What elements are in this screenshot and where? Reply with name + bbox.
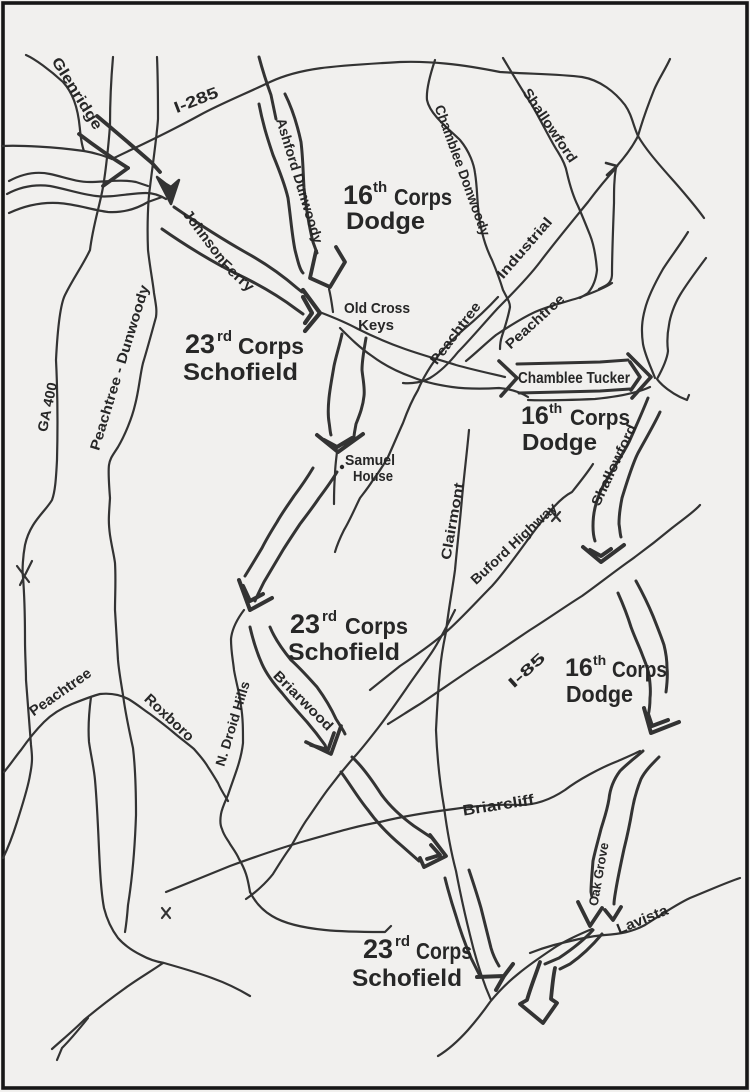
svg-text:Dodge: Dodge (566, 681, 633, 707)
svg-text:Dodge: Dodge (346, 208, 425, 235)
svg-text:Chamblee Tucker: Chamblee Tucker (518, 370, 630, 387)
svg-text:rd: rd (395, 933, 410, 950)
svg-text:th: th (593, 652, 606, 668)
svg-text:16: 16 (521, 402, 549, 430)
svg-text:Schofield: Schofield (288, 639, 400, 666)
svg-text:Samuel: Samuel (345, 453, 395, 469)
svg-text:Dodge: Dodge (522, 429, 597, 455)
svg-text:Corps: Corps (394, 184, 452, 210)
svg-text:16: 16 (565, 654, 593, 682)
svg-text:16: 16 (343, 180, 373, 210)
svg-text:23: 23 (363, 934, 393, 964)
svg-text:23: 23 (290, 609, 320, 639)
svg-text:Schofield: Schofield (352, 965, 462, 992)
svg-text:th: th (373, 179, 387, 196)
svg-text:Corps: Corps (612, 657, 667, 682)
svg-text:rd: rd (217, 328, 232, 345)
svg-text:Corps: Corps (345, 613, 408, 639)
svg-text:Schofield: Schofield (183, 359, 298, 386)
svg-text:Corps: Corps (416, 938, 472, 964)
svg-text:23: 23 (185, 329, 215, 359)
svg-text:Corps: Corps (570, 405, 630, 430)
svg-text:rd: rd (322, 608, 337, 625)
svg-text:th: th (549, 400, 562, 416)
svg-text:Keys: Keys (358, 317, 394, 334)
svg-text:House: House (353, 469, 393, 485)
svg-text:Old Cross: Old Cross (344, 300, 410, 317)
svg-text:Corps: Corps (238, 333, 304, 359)
